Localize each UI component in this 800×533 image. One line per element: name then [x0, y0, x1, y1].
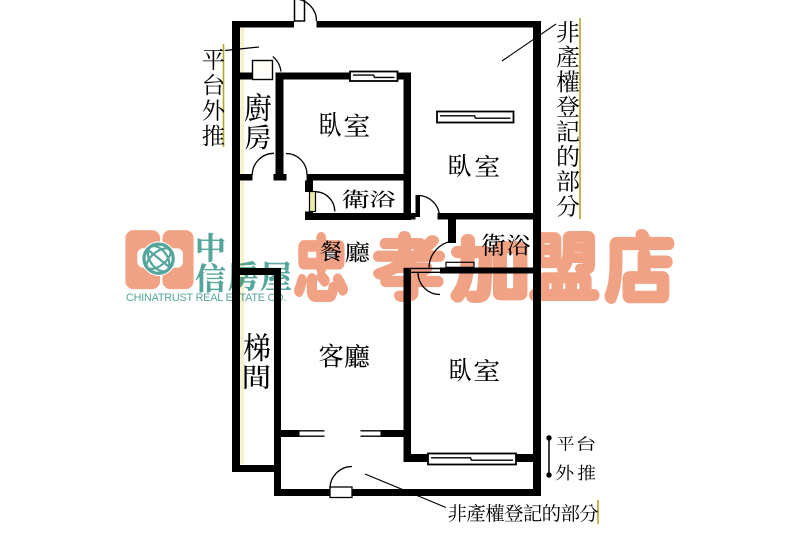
svg-text:CHINATRUST REAL ESTATE CO.: CHINATRUST REAL ESTATE CO. — [126, 292, 288, 304]
